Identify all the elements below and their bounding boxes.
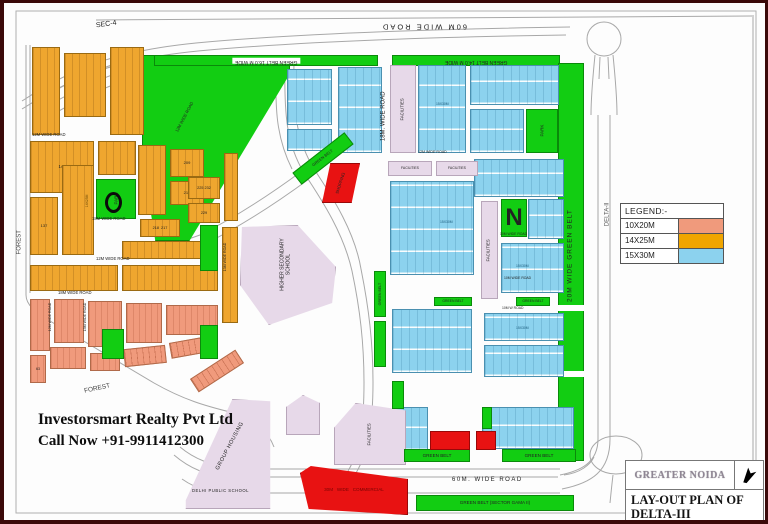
zone-b (470, 65, 559, 105)
zone-b (501, 243, 564, 293)
zone-label: FACILITIES (487, 239, 492, 261)
legend-row: 15X30M (621, 249, 723, 263)
zone-label: 218 217 (153, 226, 168, 230)
zone-o: 218 217 (140, 219, 180, 237)
zone-s (126, 303, 162, 343)
zone-b (390, 181, 474, 275)
zone-g: GREEN BELT (434, 297, 472, 306)
agency-logo: GREATER NOIDA (626, 461, 734, 489)
zone-label: FACILITIES (448, 167, 466, 171)
zone-o (110, 47, 144, 135)
zone-label: FACILITIES (368, 423, 373, 445)
shopping-block (476, 431, 496, 450)
zone-b (392, 309, 472, 373)
zone-s (30, 299, 50, 351)
zone-label: 63 (36, 367, 40, 371)
zone-label: GREEN BELT (423, 453, 452, 458)
zone-label: GREEN BELT 16.0 M WIDE (232, 58, 300, 64)
map-label: 18M WIDE ROAD (92, 217, 126, 222)
zone-o: 225 232 (188, 177, 220, 199)
zone-b (418, 65, 466, 153)
zone-b (484, 345, 564, 377)
zone-o (64, 53, 106, 117)
zone-s: 63 (30, 355, 46, 383)
map-label: 20M WIDE GREEN BELT (566, 171, 573, 341)
zone-label: 30M WIDE COMMERCIAL (324, 487, 384, 492)
map-label: DELHI PUBLIC SCHOOL (192, 489, 249, 494)
legend-swatch-10x20 (678, 219, 723, 233)
zone-label: N (505, 204, 522, 232)
legend-row: 10X20M (621, 219, 723, 234)
zone-label: GREEN BELT (SECTOR GAMA II) (460, 500, 530, 505)
map-label: 60M WIDE ROAD (334, 22, 514, 30)
highlight-ring (105, 192, 122, 213)
zone-b (470, 109, 524, 153)
zone-g: GREEN BELT (502, 449, 576, 462)
map-label: 12M WIDE ROAD (49, 295, 53, 339)
zone-b (528, 199, 564, 239)
zone-o (30, 265, 118, 291)
zone-o: 209 (170, 149, 204, 177)
map-label: 15X30M (516, 265, 529, 269)
zone-g (392, 381, 404, 409)
zone-s (50, 347, 86, 369)
watermark-company: Investorsmart Realty Pvt Ltd (38, 411, 233, 429)
facilities-bar: FACILITIES (388, 161, 432, 176)
legend-row: 14X25M (621, 234, 723, 249)
green-belt-top-west: GREEN BELT 16.0 M WIDE (154, 55, 378, 66)
map-label: 13M WIDE ROAD (224, 235, 228, 279)
legend-swatch-14x25 (678, 234, 723, 248)
zone-s (54, 299, 84, 343)
zone-label: 229 (201, 211, 207, 215)
zone-o: 137 (30, 197, 58, 255)
map-label: 15X30M (516, 327, 529, 331)
shopping-block (430, 431, 470, 450)
map-label: 10M WIDE ROAD (504, 277, 531, 281)
map-label: HIGHER SECONDARY SCHOOL (281, 233, 292, 297)
legend: LEGEND:- 10X20M 14X25M 15X30M (620, 203, 724, 264)
facilities-strip: FACILITIES (481, 201, 498, 299)
map-label: 60M. WIDE ROAD (452, 477, 523, 484)
zone-o: 229 (188, 203, 220, 223)
watermark: Investorsmart Realty Pvt Ltd Call Now +9… (38, 411, 233, 450)
map-label: 12M WIDE ROAD (32, 133, 66, 138)
map-label: 18M. WIDE ROAD (381, 66, 388, 166)
zone-label: PARK (539, 125, 544, 137)
zone-label: SHOPPING (335, 172, 346, 195)
zone-label: 209 (184, 161, 191, 166)
legend-title: LEGEND:- (621, 204, 723, 219)
zone-label: GREEN BELT 14.0 M WIDE (445, 58, 507, 64)
map-label: 15X30M (440, 221, 453, 225)
zone-g (482, 407, 492, 429)
green-belt-strip: GREEN BELT (374, 271, 386, 317)
north-arrow-icon (734, 461, 763, 489)
map-label: 14X25M (86, 181, 90, 221)
map-label: FOREST (17, 212, 24, 272)
zone-b (474, 159, 564, 197)
park (200, 225, 218, 271)
plan-title: LAY-OUT PLAN OF DELTA-III (626, 490, 763, 520)
zone-o (138, 145, 166, 215)
map-canvas: GREEN BELT 16.0 M WIDEGREEN BELT 14.0 M … (4, 3, 765, 520)
park: PARK (526, 109, 558, 153)
zone-label: GREEN BELT (522, 300, 543, 304)
zone-label: 137 (41, 224, 48, 229)
title-block: GREATER NOIDA LAY-OUT PLAN OF DELTA-III (625, 460, 764, 520)
facilities-bar: FACILITIES (436, 161, 478, 176)
zone-b (287, 69, 332, 125)
map-label: 12M WIDE ROAD (96, 257, 130, 262)
zone-g: GREEN BELT (516, 297, 550, 306)
map-label: 15M WIDE ROAD (84, 295, 88, 339)
zone-label: GREEN BELT (525, 453, 554, 458)
map-label: 12M WIDE ROAD (418, 151, 447, 155)
zone-label: FACILITIES (401, 98, 406, 120)
map-label: DELTA-II (605, 186, 612, 242)
zone-label: GREEN BELT (442, 300, 463, 304)
map-label: 15X30M (436, 103, 449, 107)
green-belt-gama: GREEN BELT (SECTOR GAMA II) (416, 495, 574, 511)
zone-label: 225 232 (197, 186, 211, 190)
green-belt-strip (374, 321, 386, 367)
zone-o (98, 141, 136, 175)
park (102, 329, 124, 359)
map-label: 10M WIDE ROAD (500, 233, 527, 237)
zone-o (224, 153, 238, 221)
zone-label: GREEN BELT (378, 283, 382, 306)
legend-swatch-15x30 (678, 249, 723, 263)
zone-label: FACILITIES (401, 167, 419, 171)
zone-o (32, 47, 60, 135)
map-label: 10M W ROAD (502, 307, 523, 311)
watermark-phone: Call Now +91-9911412300 (38, 433, 233, 450)
layout-plan-image: GREEN BELT 16.0 M WIDEGREEN BELT 14.0 M … (0, 0, 768, 524)
park (200, 325, 218, 359)
zone-g: GREEN BELT (404, 449, 470, 462)
facilities-strip: FACILITIES (390, 65, 416, 153)
